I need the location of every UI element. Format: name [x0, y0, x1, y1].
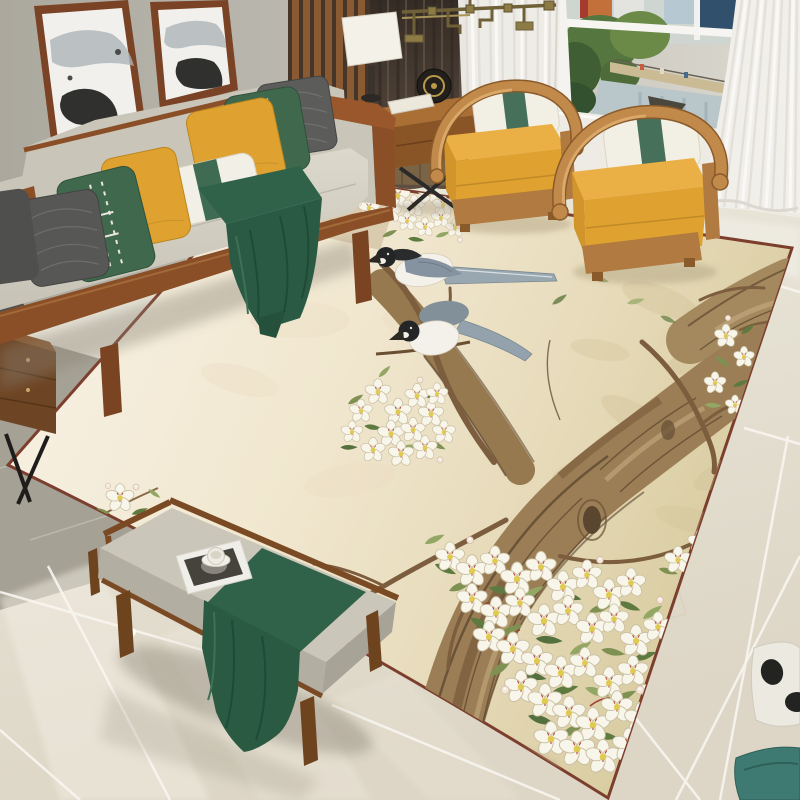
view-figure [640, 64, 644, 70]
lamp-stem [368, 66, 375, 96]
scene [0, 0, 800, 800]
floor-cushion [735, 747, 800, 800]
view-tree [610, 11, 670, 59]
window-muntin [694, 0, 700, 40]
chair-arm-curl [430, 169, 444, 183]
trunk-knot [583, 506, 601, 534]
sofa-arm-face [372, 126, 396, 208]
trunk-knot [661, 420, 675, 440]
living-room-photo [0, 0, 800, 800]
chair-arm-curl [712, 174, 728, 190]
view-figure [684, 72, 688, 78]
view-building [664, 0, 698, 24]
ornament [751, 642, 800, 726]
view-building [580, 0, 588, 18]
lamp-base [361, 94, 381, 102]
lamp-shade [342, 12, 402, 66]
view-figure [660, 68, 664, 74]
chair-arm-curl [552, 204, 568, 220]
